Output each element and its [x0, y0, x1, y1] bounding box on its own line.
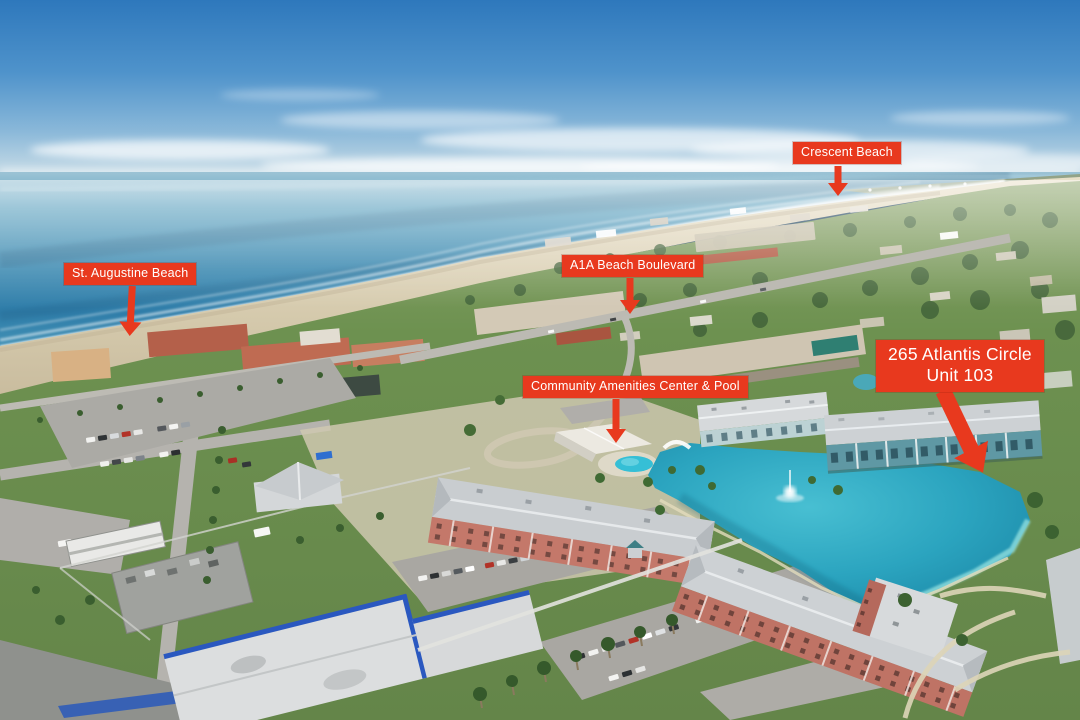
crescent-beach-arrow-icon	[826, 166, 850, 196]
property-arrow-icon	[933, 387, 995, 475]
a1a-beach-boulevard-arrow-icon	[618, 278, 642, 314]
atmospheric-haze	[0, 180, 1080, 308]
map-label-crescent-beach: Crescent Beach	[793, 142, 901, 164]
community-amenities-arrow-icon	[604, 399, 628, 443]
aerial-photo: St. Augustine Beach Crescent Beach A1A B…	[0, 0, 1080, 720]
st-augustine-beach-arrow-icon	[117, 285, 146, 336]
label-text: A1A Beach Boulevard	[570, 258, 695, 272]
map-label-community-amenities: Community Amenities Center & Pool	[523, 376, 748, 398]
map-label-st-augustine-beach: St. Augustine Beach	[64, 263, 196, 285]
label-text-line2: Unit 103	[888, 365, 1032, 386]
map-label-a1a-beach-boulevard: A1A Beach Boulevard	[562, 255, 703, 277]
sky	[0, 0, 1080, 182]
label-text: Community Amenities Center & Pool	[531, 379, 740, 393]
label-text: Crescent Beach	[801, 145, 893, 159]
map-label-property-address: 265 Atlantis Circle Unit 103	[876, 340, 1044, 392]
label-text-line1: 265 Atlantis Circle	[888, 344, 1032, 365]
label-text: St. Augustine Beach	[72, 266, 188, 280]
